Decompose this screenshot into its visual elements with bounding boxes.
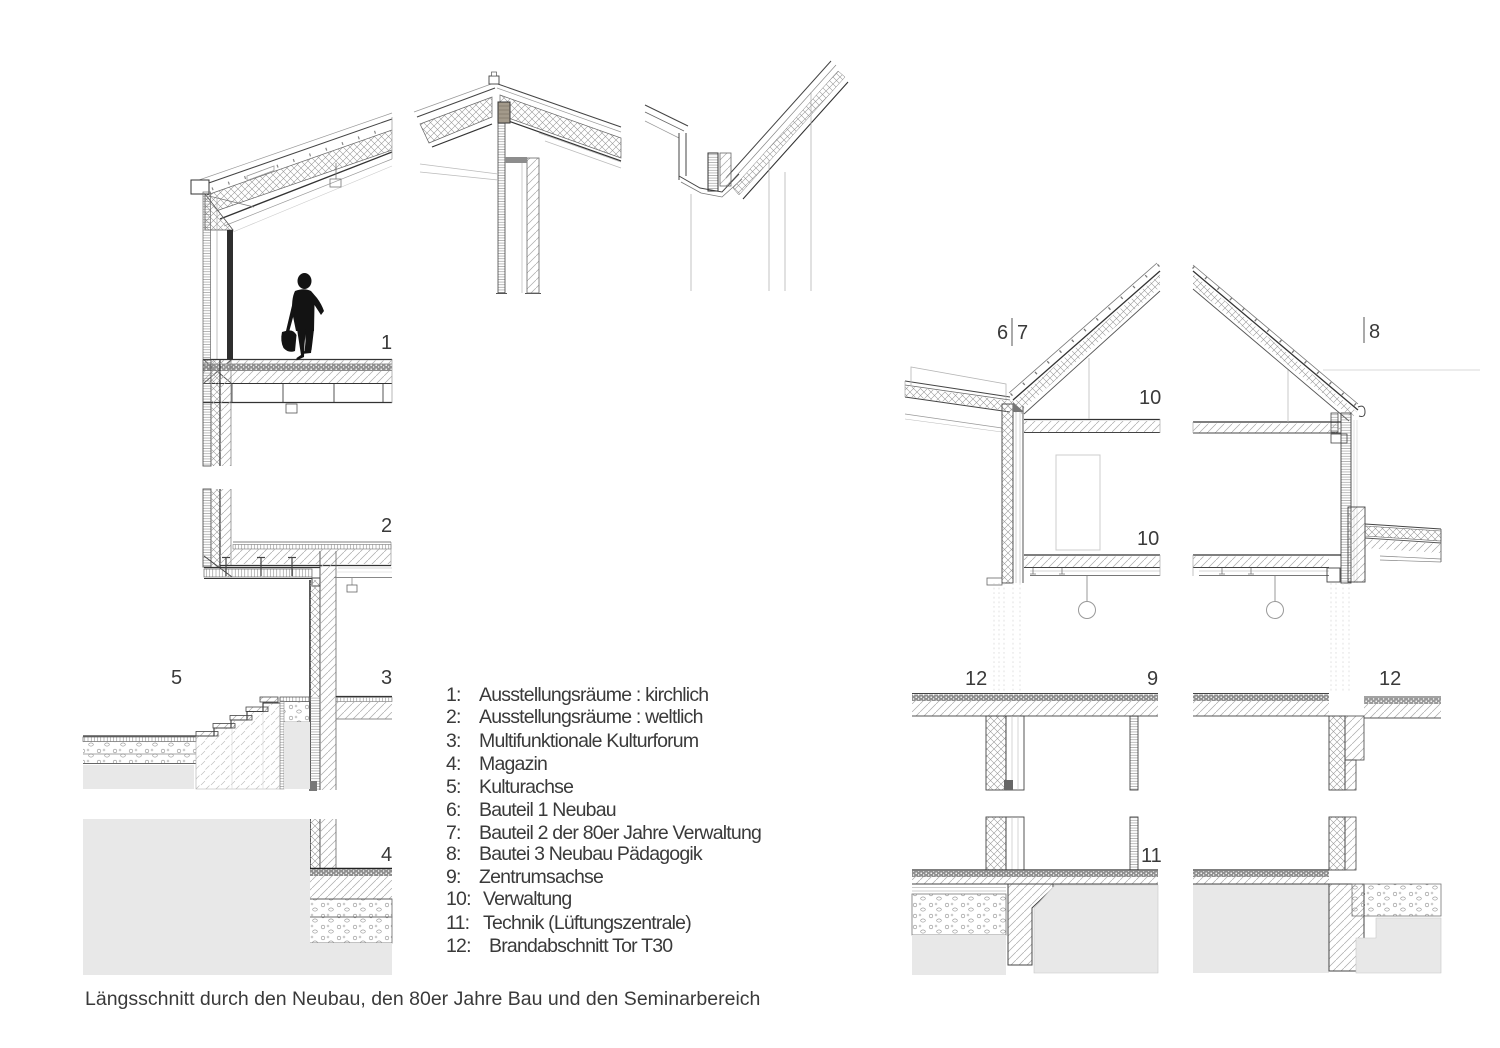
svg-text:Magazin: Magazin <box>479 753 547 775</box>
svg-text:8: 8 <box>1369 321 1380 343</box>
svg-text:Technik (Lüftungszentrale): Technik (Lüftungszentrale) <box>483 912 691 934</box>
svg-text:4:: 4: <box>446 753 461 775</box>
svg-text:12: 12 <box>965 668 987 690</box>
svg-text:12:: 12: <box>446 935 471 957</box>
svg-text:Multifunktionale Kulturforum: Multifunktionale Kulturforum <box>479 730 698 752</box>
svg-text:Bauteil 2 der 80er Jahre Verwa: Bauteil 2 der 80er Jahre Verwaltung <box>479 822 761 844</box>
svg-text:7:: 7: <box>446 822 461 844</box>
svg-text:9:: 9: <box>446 866 461 888</box>
svg-text:2:: 2: <box>446 706 461 728</box>
svg-text:Längsschnitt durch den Neubau,: Längsschnitt durch den Neubau, den 80er … <box>85 988 760 1010</box>
svg-text:Bautei 3 Neubau Pädagogik: Bautei 3 Neubau Pädagogik <box>479 843 703 865</box>
svg-text:11:: 11: <box>446 912 469 934</box>
svg-text:3:: 3: <box>446 730 461 752</box>
svg-text:4: 4 <box>381 844 392 866</box>
svg-text:Zentrumsachse: Zentrumsachse <box>479 866 603 888</box>
svg-text:12: 12 <box>1379 668 1401 690</box>
svg-text:Bauteil 1 Neubau: Bauteil 1 Neubau <box>479 799 616 821</box>
svg-text:1:: 1: <box>446 684 461 706</box>
svg-text:10: 10 <box>1137 528 1159 550</box>
svg-text:10: 10 <box>1139 387 1161 409</box>
svg-text:3: 3 <box>381 667 392 689</box>
svg-text:Verwaltung: Verwaltung <box>483 888 571 910</box>
svg-text:5: 5 <box>171 667 182 689</box>
svg-text:Ausstellungsräume : weltlich: Ausstellungsräume : weltlich <box>479 706 703 728</box>
svg-text:2: 2 <box>381 515 392 537</box>
svg-text:5:: 5: <box>446 776 461 798</box>
svg-text:Brandabschnitt Tor T30: Brandabschnitt Tor T30 <box>489 935 673 957</box>
svg-text:1: 1 <box>381 332 392 354</box>
svg-text:Ausstellungsräume : kirchlich: Ausstellungsräume : kirchlich <box>479 684 708 706</box>
svg-text:7: 7 <box>1017 322 1028 344</box>
svg-text:9: 9 <box>1147 668 1158 690</box>
svg-text:10:: 10: <box>446 888 471 910</box>
svg-text:11: 11 <box>1141 845 1162 867</box>
svg-text:6: 6 <box>997 322 1008 344</box>
svg-text:6:: 6: <box>446 799 461 821</box>
svg-text:Kulturachse: Kulturachse <box>479 776 573 798</box>
svg-text:8:: 8: <box>446 843 461 865</box>
